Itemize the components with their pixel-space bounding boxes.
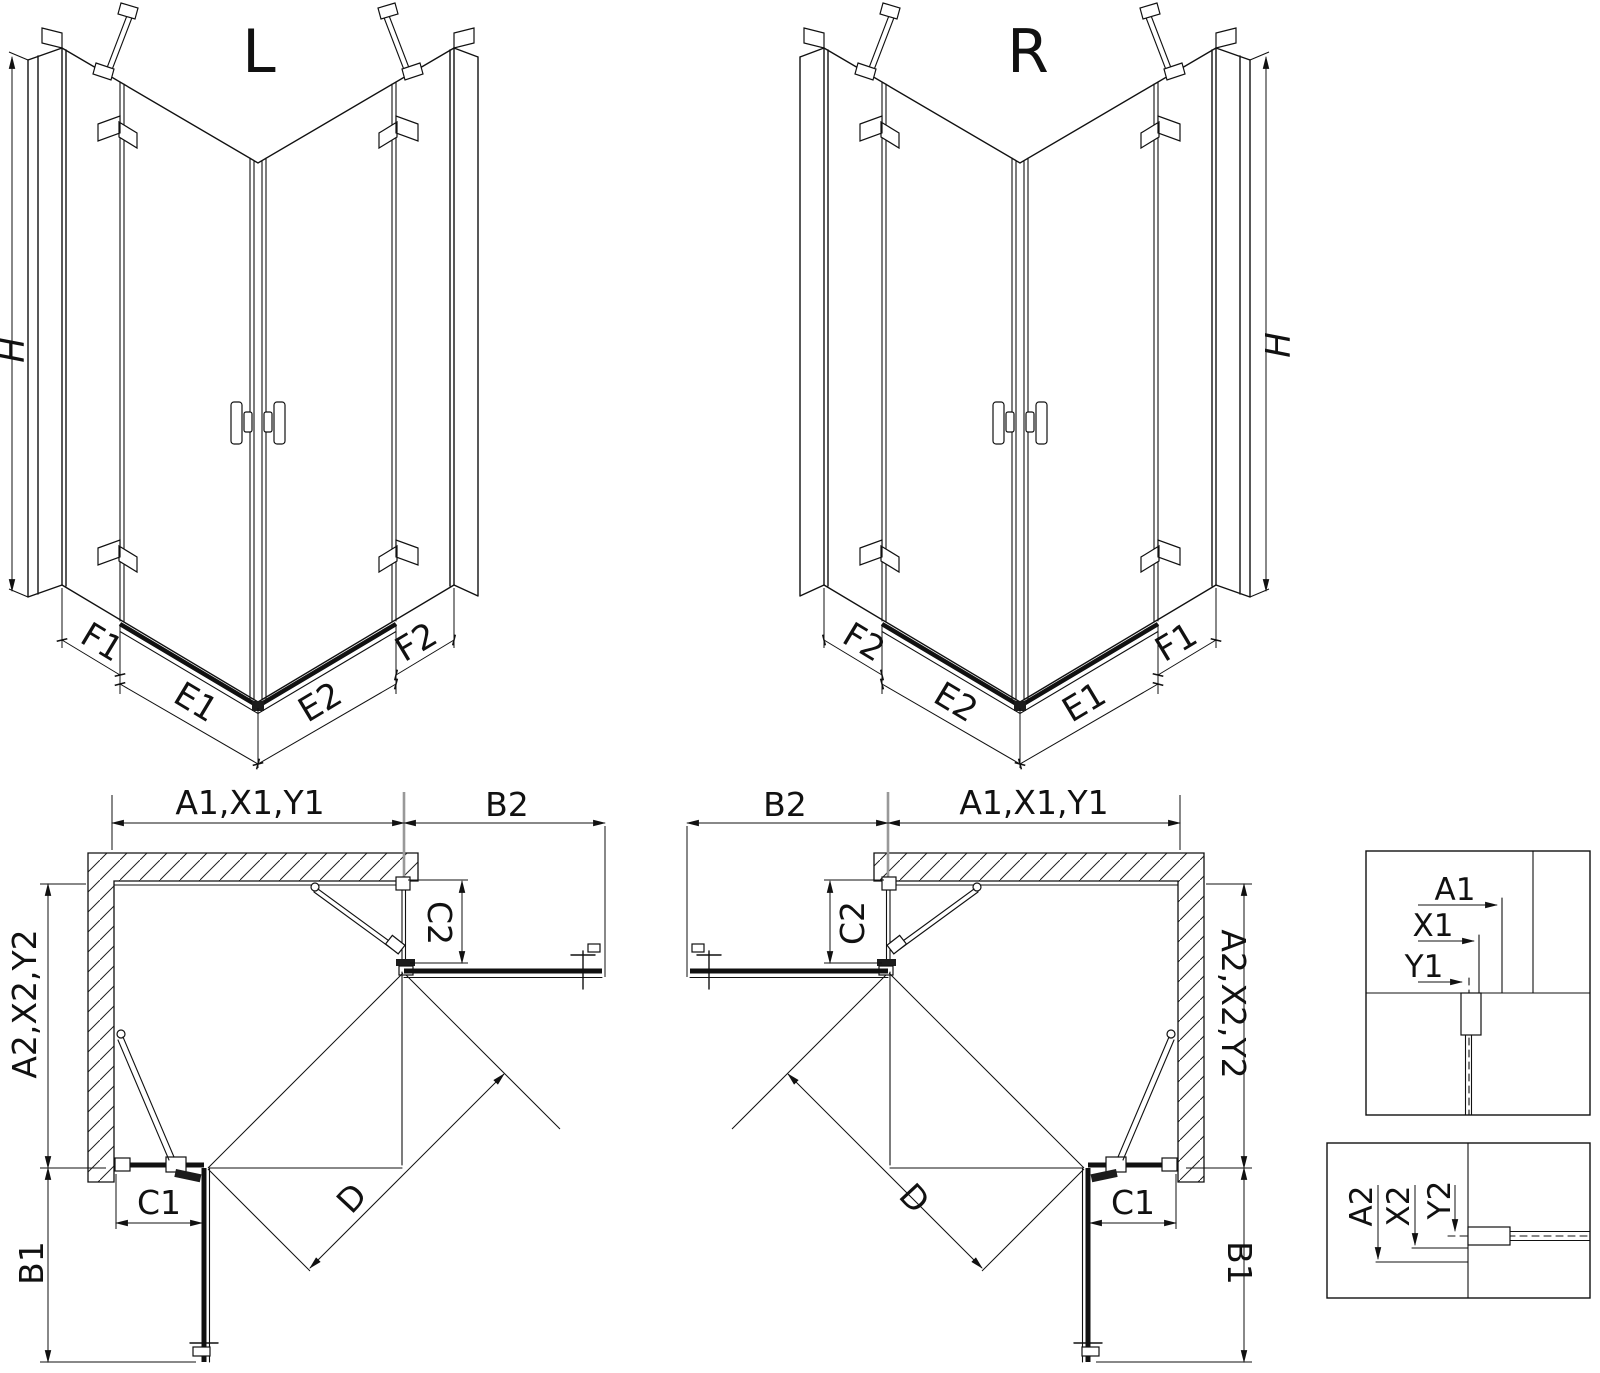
- plan-right-width-label: A1,X1,Y1: [959, 783, 1108, 822]
- plan-left-walls: [88, 853, 418, 1182]
- plan-left-c1-label: C1: [137, 1183, 181, 1222]
- plan-left-width-label: A1,X1,Y1: [175, 783, 324, 822]
- iso-right-height-label: H: [1259, 332, 1299, 358]
- iso-view-right: R H F2 E2 E1 F1: [800, 3, 1299, 768]
- detail-depth-x2-label: X2: [1381, 1186, 1417, 1227]
- detail-depth-y2-label: Y2: [1422, 1181, 1458, 1221]
- plan-left-b1-label: B1: [12, 1241, 51, 1285]
- plan-right-diagonal-label: D: [891, 1176, 937, 1221]
- plan-view-right: B2 A1,X1,Y1 C2 A2,X2,Y2 B1 C1 D: [687, 783, 1259, 1362]
- detail-width-y1-label: Y1: [1404, 949, 1444, 985]
- detail-depth-a2-label: A2: [1344, 1186, 1380, 1227]
- iso-right-e1-label: E1: [1056, 674, 1114, 730]
- plan-right-walls: [874, 853, 1204, 1182]
- iso-left-f2-label: F2: [388, 615, 444, 671]
- plan-right-c1-label: C1: [1111, 1183, 1155, 1222]
- iso-left-height-label: H: [0, 337, 33, 363]
- plan-view-left: A1,X1,Y1 B2 C2 A2,X2,Y2 B1 C1 D: [5, 783, 605, 1362]
- plan-left-depth-label: A2,X2,Y2: [5, 929, 44, 1078]
- shower-enclosure-diagram: L H F1 E1 E2 F2 R H F2 E2 E1 F1 A1,X1,Y1…: [0, 0, 1600, 1373]
- plan-right-c2-label: C2: [833, 901, 872, 945]
- plan-left-c2-label: C2: [420, 901, 459, 945]
- plan-left-b2-label: B2: [485, 785, 529, 824]
- iso-view-left: L H F1 E1 E2 F2: [0, 3, 478, 768]
- plan-left-diagonal-label: D: [329, 1176, 375, 1221]
- plan-right-b1-label: B1: [1220, 1241, 1259, 1285]
- detail-width-a1-label: A1: [1435, 872, 1476, 908]
- technical-drawing-page: L H F1 E1 E2 F2 R H F2 E2 E1 F1 A1,X1,Y1…: [0, 0, 1600, 1373]
- iso-left-title: L: [242, 17, 276, 87]
- plan-right-b2-label: B2: [763, 785, 807, 824]
- iso-right-title: R: [1007, 17, 1049, 87]
- detail-width-x1-label: X1: [1413, 908, 1454, 944]
- detail-box-depth: A2 X2 Y2: [1327, 1143, 1590, 1298]
- plan-right-depth-label: A2,X2,Y2: [1214, 929, 1253, 1078]
- detail-box-width: A1 X1 Y1: [1366, 851, 1590, 1115]
- iso-right-e2-label: E2: [927, 674, 985, 730]
